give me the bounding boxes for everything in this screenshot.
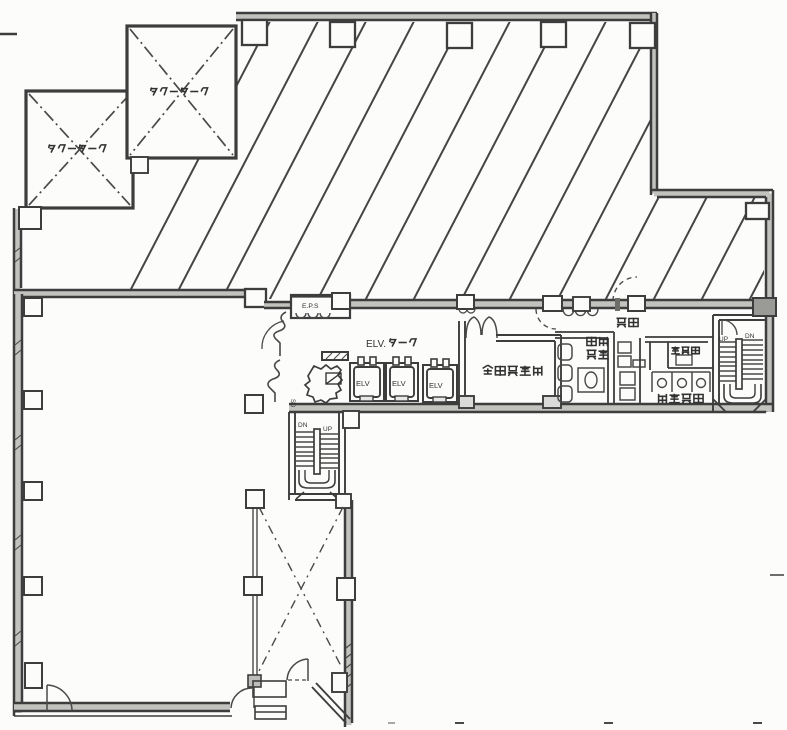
svg-text:UP: UP <box>323 426 332 433</box>
svg-text:SD: SD <box>289 399 295 408</box>
svg-text:ELV: ELV <box>392 379 406 388</box>
svg-text:DN: DN <box>298 422 308 429</box>
svg-text:ELV: ELV <box>356 379 370 388</box>
svg-text:E.P.S: E.P.S <box>302 303 319 310</box>
svg-text:DN: DN <box>745 333 755 340</box>
svg-text:ELV.: ELV. <box>366 339 386 350</box>
svg-text:ELV: ELV <box>429 381 443 390</box>
